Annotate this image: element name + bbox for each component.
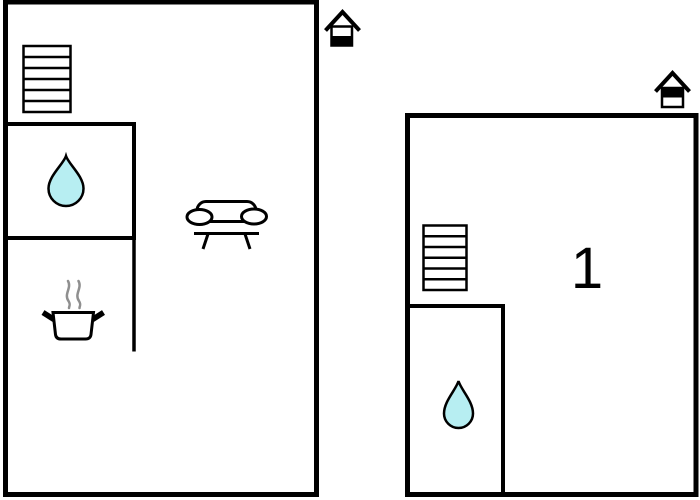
floor-number-label: 1 [571, 236, 603, 301]
staircase-icon [424, 226, 467, 291]
sofa-armrest-right [242, 209, 267, 224]
house-upper-level-icon [656, 73, 690, 107]
floor-plan-canvas: 1 [0, 0, 700, 500]
house-ground-level-icon [326, 12, 360, 46]
house-body-filled-bottom [332, 36, 353, 46]
first-floor-plan: 1 [408, 116, 697, 495]
pot-body [53, 313, 94, 340]
staircase-icon [24, 46, 71, 112]
house-body-filled-top [662, 88, 683, 98]
floor-plan-svg: 1 [0, 0, 700, 500]
sofa-armrest-left [187, 210, 212, 225]
ground-floor-plan [6, 2, 317, 495]
